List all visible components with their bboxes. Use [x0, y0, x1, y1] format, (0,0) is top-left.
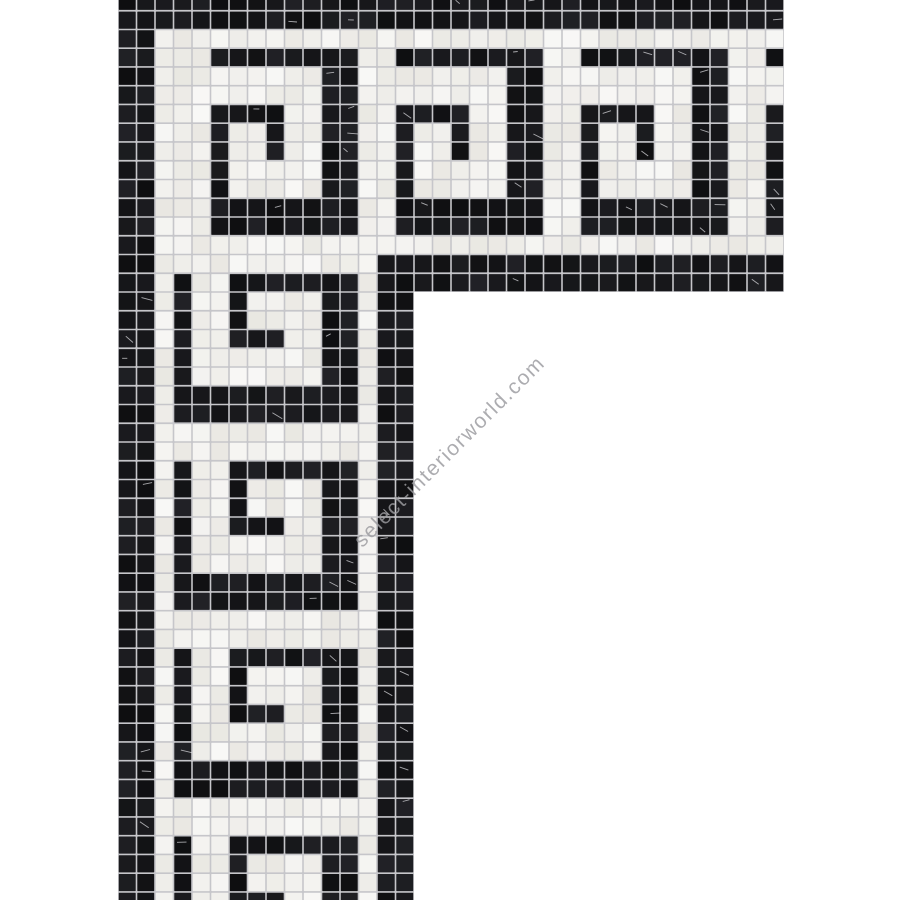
white-marble-tile	[156, 330, 173, 347]
black-marble-tile	[748, 12, 765, 29]
black-marble-tile	[119, 705, 136, 722]
white-marble-tile	[267, 30, 284, 47]
white-marble-tile	[156, 124, 173, 141]
white-marble-tile	[322, 630, 339, 647]
black-marble-tile	[137, 143, 154, 160]
black-marble-tile	[396, 874, 413, 891]
white-marble-tile	[267, 855, 284, 872]
black-marble-tile	[378, 387, 395, 404]
black-marble-tile	[378, 293, 395, 310]
white-marble-tile	[544, 30, 561, 47]
black-marble-tile	[137, 499, 154, 516]
black-marble-tile	[137, 837, 154, 854]
white-marble-tile	[304, 368, 321, 385]
white-marble-tile	[193, 462, 210, 479]
white-marble-tile	[248, 349, 265, 366]
white-marble-tile	[304, 612, 321, 629]
white-marble-tile	[359, 105, 376, 122]
white-marble-tile	[359, 705, 376, 722]
black-marble-tile	[766, 0, 783, 10]
white-marble-tile	[230, 424, 247, 441]
white-marble-tile	[304, 105, 321, 122]
white-marble-tile	[674, 87, 691, 104]
white-marble-tile	[285, 368, 302, 385]
white-marble-tile	[489, 105, 506, 122]
white-marble-tile	[156, 274, 173, 291]
white-marble-tile	[322, 818, 339, 835]
white-marble-tile	[211, 743, 228, 760]
white-marble-tile	[285, 499, 302, 516]
black-marble-tile	[692, 87, 709, 104]
white-marble-tile	[211, 518, 228, 535]
black-marble-tile	[637, 199, 654, 216]
black-marble-tile	[119, 462, 136, 479]
white-marble-tile	[341, 443, 358, 460]
white-marble-tile	[193, 649, 210, 666]
black-marble-tile	[248, 12, 265, 29]
white-marble-tile	[174, 612, 191, 629]
black-marble-tile	[119, 255, 136, 272]
black-marble-tile	[230, 705, 247, 722]
white-marble-tile	[156, 649, 173, 666]
black-marble-tile	[396, 199, 413, 216]
black-marble-tile	[581, 274, 598, 291]
white-marble-tile	[230, 162, 247, 179]
white-marble-tile	[267, 612, 284, 629]
black-marble-tile	[674, 12, 691, 29]
black-marble-tile	[174, 537, 191, 554]
white-marble-tile	[211, 649, 228, 666]
black-marble-tile	[563, 255, 580, 272]
white-marble-tile	[304, 499, 321, 516]
white-marble-tile	[600, 124, 617, 141]
white-marble-tile	[470, 162, 487, 179]
black-marble-tile	[304, 199, 321, 216]
black-marble-tile	[322, 649, 339, 666]
black-marble-tile	[267, 0, 284, 10]
black-marble-tile	[285, 274, 302, 291]
white-marble-tile	[748, 68, 765, 85]
black-marble-tile	[119, 162, 136, 179]
white-marble-tile	[304, 143, 321, 160]
black-marble-tile	[119, 780, 136, 797]
black-marble-tile	[341, 387, 358, 404]
black-marble-tile	[396, 349, 413, 366]
black-marble-tile	[174, 649, 191, 666]
white-marble-tile	[285, 687, 302, 704]
black-marble-tile	[267, 837, 284, 854]
white-marble-tile	[433, 143, 450, 160]
black-marble-tile	[267, 12, 284, 29]
black-marble-tile	[396, 424, 413, 441]
black-marble-tile	[137, 68, 154, 85]
black-marble-tile	[433, 255, 450, 272]
black-marble-tile	[341, 555, 358, 572]
black-marble-tile	[396, 612, 413, 629]
white-marble-tile	[729, 30, 746, 47]
black-marble-tile	[174, 724, 191, 741]
white-marble-tile	[230, 68, 247, 85]
white-marble-tile	[193, 499, 210, 516]
white-marble-tile	[285, 518, 302, 535]
black-marble-tile	[359, 0, 376, 10]
white-marble-tile	[304, 237, 321, 254]
black-marble-tile	[692, 124, 709, 141]
white-marble-tile	[378, 199, 395, 216]
white-marble-tile	[359, 124, 376, 141]
black-marble-tile	[674, 199, 691, 216]
black-marble-tile	[211, 12, 228, 29]
white-marble-tile	[618, 143, 635, 160]
black-marble-tile	[137, 649, 154, 666]
white-marble-tile	[230, 143, 247, 160]
black-marble-tile	[396, 762, 413, 779]
black-marble-tile	[692, 162, 709, 179]
white-marble-tile	[193, 312, 210, 329]
white-marble-tile	[211, 799, 228, 816]
white-marble-tile	[304, 255, 321, 272]
white-marble-tile	[674, 162, 691, 179]
white-marble-tile	[285, 330, 302, 347]
white-marble-tile	[156, 855, 173, 872]
black-marble-tile	[396, 330, 413, 347]
white-marble-tile	[248, 555, 265, 572]
white-marble-tile	[378, 162, 395, 179]
black-marble-tile	[248, 274, 265, 291]
black-marble-tile	[248, 893, 265, 900]
black-marble-tile	[581, 49, 598, 66]
white-marble-tile	[267, 555, 284, 572]
white-marble-tile	[359, 349, 376, 366]
white-marble-tile	[359, 424, 376, 441]
white-marble-tile	[156, 218, 173, 235]
black-marble-tile	[304, 274, 321, 291]
white-marble-tile	[285, 180, 302, 197]
white-marble-tile	[156, 162, 173, 179]
white-marble-tile	[600, 143, 617, 160]
black-marble-tile	[119, 837, 136, 854]
black-marble-tile	[211, 387, 228, 404]
white-marble-tile	[211, 293, 228, 310]
white-marble-tile	[359, 574, 376, 591]
white-marble-tile	[285, 874, 302, 891]
black-marble-tile	[341, 68, 358, 85]
black-marble-tile	[674, 255, 691, 272]
black-marble-tile	[415, 218, 432, 235]
black-marble-tile	[396, 837, 413, 854]
black-marble-tile	[137, 780, 154, 797]
black-marble-tile	[341, 593, 358, 610]
white-marble-tile	[267, 480, 284, 497]
black-marble-tile	[285, 405, 302, 422]
white-marble-tile	[285, 349, 302, 366]
black-marble-tile	[637, 49, 654, 66]
black-marble-tile	[341, 87, 358, 104]
black-marble-tile	[544, 255, 561, 272]
black-marble-tile	[507, 199, 524, 216]
white-marble-tile	[748, 180, 765, 197]
black-marble-tile	[415, 274, 432, 291]
black-marble-tile	[119, 143, 136, 160]
black-marble-tile	[119, 312, 136, 329]
white-marble-tile	[230, 630, 247, 647]
white-marble-tile	[156, 574, 173, 591]
white-marble-tile	[230, 124, 247, 141]
white-marble-tile	[211, 612, 228, 629]
white-marble-tile	[211, 855, 228, 872]
black-marble-tile	[415, 49, 432, 66]
white-marble-tile	[304, 293, 321, 310]
black-marble-tile	[396, 724, 413, 741]
white-marble-tile	[544, 143, 561, 160]
white-marble-tile	[729, 199, 746, 216]
white-marble-tile	[655, 68, 672, 85]
white-marble-tile	[544, 237, 561, 254]
black-marble-tile	[655, 49, 672, 66]
white-marble-tile	[304, 180, 321, 197]
white-marble-tile	[304, 330, 321, 347]
black-marble-tile	[600, 49, 617, 66]
black-marble-tile	[119, 855, 136, 872]
white-marble-tile	[452, 180, 469, 197]
black-marble-tile	[119, 330, 136, 347]
white-marble-tile	[544, 199, 561, 216]
white-marble-tile	[729, 124, 746, 141]
black-marble-tile	[119, 518, 136, 535]
black-marble-tile	[396, 162, 413, 179]
black-marble-tile	[137, 855, 154, 872]
black-marble-tile	[322, 180, 339, 197]
black-marble-tile	[322, 687, 339, 704]
white-marble-tile	[174, 124, 191, 141]
black-marble-tile	[378, 705, 395, 722]
white-marble-tile	[544, 180, 561, 197]
white-marble-tile	[193, 218, 210, 235]
black-marble-tile	[211, 0, 228, 10]
black-marble-tile	[119, 593, 136, 610]
white-marble-tile	[674, 143, 691, 160]
white-marble-tile	[156, 237, 173, 254]
white-marble-tile	[359, 874, 376, 891]
black-marble-tile	[396, 555, 413, 572]
white-marble-tile	[193, 837, 210, 854]
black-marble-tile	[119, 349, 136, 366]
white-marble-tile	[766, 30, 783, 47]
white-marble-tile	[304, 349, 321, 366]
black-marble-tile	[581, 124, 598, 141]
black-marble-tile	[230, 874, 247, 891]
black-marble-tile	[729, 12, 746, 29]
black-marble-tile	[581, 218, 598, 235]
white-marble-tile	[748, 199, 765, 216]
white-marble-tile	[618, 30, 635, 47]
white-marble-tile	[563, 180, 580, 197]
white-marble-tile	[248, 687, 265, 704]
marble-vein	[513, 52, 518, 53]
black-marble-tile	[637, 124, 654, 141]
black-marble-tile	[119, 555, 136, 572]
black-marble-tile	[378, 593, 395, 610]
white-marble-tile	[637, 162, 654, 179]
black-marble-tile	[378, 12, 395, 29]
white-marble-tile	[193, 537, 210, 554]
white-marble-tile	[174, 443, 191, 460]
black-marble-tile	[433, 12, 450, 29]
black-marble-tile	[137, 349, 154, 366]
black-marble-tile	[119, 0, 136, 10]
black-marble-tile	[322, 668, 339, 685]
black-marble-tile	[396, 387, 413, 404]
white-marble-tile	[193, 705, 210, 722]
white-marble-tile	[248, 724, 265, 741]
black-marble-tile	[248, 518, 265, 535]
white-marble-tile	[359, 143, 376, 160]
black-marble-tile	[618, 274, 635, 291]
black-marble-tile	[507, 180, 524, 197]
white-marble-tile	[674, 180, 691, 197]
white-marble-tile	[729, 162, 746, 179]
black-marble-tile	[174, 893, 191, 900]
black-marble-tile	[655, 255, 672, 272]
black-marble-tile	[378, 837, 395, 854]
black-marble-tile	[174, 668, 191, 685]
black-marble-tile	[341, 405, 358, 422]
white-marble-tile	[729, 218, 746, 235]
white-marble-tile	[748, 143, 765, 160]
white-marble-tile	[267, 743, 284, 760]
white-marble-tile	[156, 105, 173, 122]
white-marble-tile	[359, 30, 376, 47]
black-marble-tile	[452, 218, 469, 235]
white-marble-tile	[248, 424, 265, 441]
black-marble-tile	[655, 0, 672, 10]
black-marble-tile	[711, 87, 728, 104]
white-marble-tile	[748, 218, 765, 235]
white-marble-tile	[248, 124, 265, 141]
black-marble-tile	[396, 124, 413, 141]
black-marble-tile	[637, 12, 654, 29]
white-marble-tile	[304, 555, 321, 572]
white-marble-tile	[248, 537, 265, 554]
white-marble-tile	[267, 537, 284, 554]
white-marble-tile	[267, 255, 284, 272]
black-marble-tile	[489, 255, 506, 272]
black-marble-tile	[452, 49, 469, 66]
black-marble-tile	[729, 0, 746, 10]
white-marble-tile	[378, 87, 395, 104]
white-marble-tile	[248, 743, 265, 760]
black-marble-tile	[322, 405, 339, 422]
black-marble-tile	[119, 180, 136, 197]
white-marble-tile	[600, 68, 617, 85]
black-marble-tile	[396, 180, 413, 197]
white-marble-tile	[193, 799, 210, 816]
white-marble-tile	[359, 649, 376, 666]
black-marble-tile	[692, 143, 709, 160]
black-marble-tile	[174, 293, 191, 310]
white-marble-tile	[304, 818, 321, 835]
black-marble-tile	[341, 705, 358, 722]
black-marble-tile	[267, 49, 284, 66]
white-marble-tile	[211, 705, 228, 722]
black-marble-tile	[341, 349, 358, 366]
black-marble-tile	[322, 349, 339, 366]
white-marble-tile	[193, 518, 210, 535]
white-marble-tile	[156, 87, 173, 104]
black-marble-tile	[119, 649, 136, 666]
white-marble-tile	[748, 49, 765, 66]
white-marble-tile	[285, 705, 302, 722]
white-marble-tile	[729, 68, 746, 85]
white-marble-tile	[489, 124, 506, 141]
black-marble-tile	[267, 593, 284, 610]
black-marble-tile	[600, 274, 617, 291]
white-marble-tile	[267, 162, 284, 179]
white-marble-tile	[600, 162, 617, 179]
white-marble-tile	[193, 349, 210, 366]
white-marble-tile	[285, 799, 302, 816]
black-marble-tile	[748, 255, 765, 272]
black-marble-tile	[674, 49, 691, 66]
white-marble-tile	[359, 330, 376, 347]
black-marble-tile	[396, 668, 413, 685]
black-marble-tile	[174, 405, 191, 422]
white-marble-tile	[489, 87, 506, 104]
white-marble-tile	[341, 255, 358, 272]
white-marble-tile	[211, 893, 228, 900]
black-marble-tile	[304, 780, 321, 797]
white-marble-tile	[359, 462, 376, 479]
black-marble-tile	[544, 0, 561, 10]
black-marble-tile	[322, 518, 339, 535]
black-marble-tile	[692, 49, 709, 66]
black-marble-tile	[618, 49, 635, 66]
black-marble-tile	[433, 199, 450, 216]
black-marble-tile	[711, 68, 728, 85]
black-marble-tile	[396, 0, 413, 10]
black-marble-tile	[137, 330, 154, 347]
black-marble-tile	[119, 387, 136, 404]
white-marble-tile	[526, 237, 543, 254]
white-marble-tile	[655, 143, 672, 160]
black-marble-tile	[766, 199, 783, 216]
black-marble-tile	[378, 818, 395, 835]
white-marble-tile	[359, 405, 376, 422]
white-marble-tile	[415, 87, 432, 104]
black-marble-tile	[137, 49, 154, 66]
black-marble-tile	[322, 780, 339, 797]
black-marble-tile	[322, 368, 339, 385]
white-marble-tile	[359, 480, 376, 497]
black-marble-tile	[230, 274, 247, 291]
white-marble-tile	[248, 87, 265, 104]
white-marble-tile	[600, 237, 617, 254]
black-marble-tile	[489, 12, 506, 29]
black-marble-tile	[341, 49, 358, 66]
black-marble-tile	[637, 255, 654, 272]
black-marble-tile	[267, 274, 284, 291]
white-marble-tile	[674, 124, 691, 141]
white-marble-tile	[396, 30, 413, 47]
black-marble-tile	[137, 555, 154, 572]
white-marble-tile	[156, 818, 173, 835]
black-marble-tile	[322, 762, 339, 779]
white-marble-tile	[359, 780, 376, 797]
white-marble-tile	[285, 30, 302, 47]
black-marble-tile	[322, 105, 339, 122]
black-marble-tile	[378, 612, 395, 629]
black-marble-tile	[378, 349, 395, 366]
